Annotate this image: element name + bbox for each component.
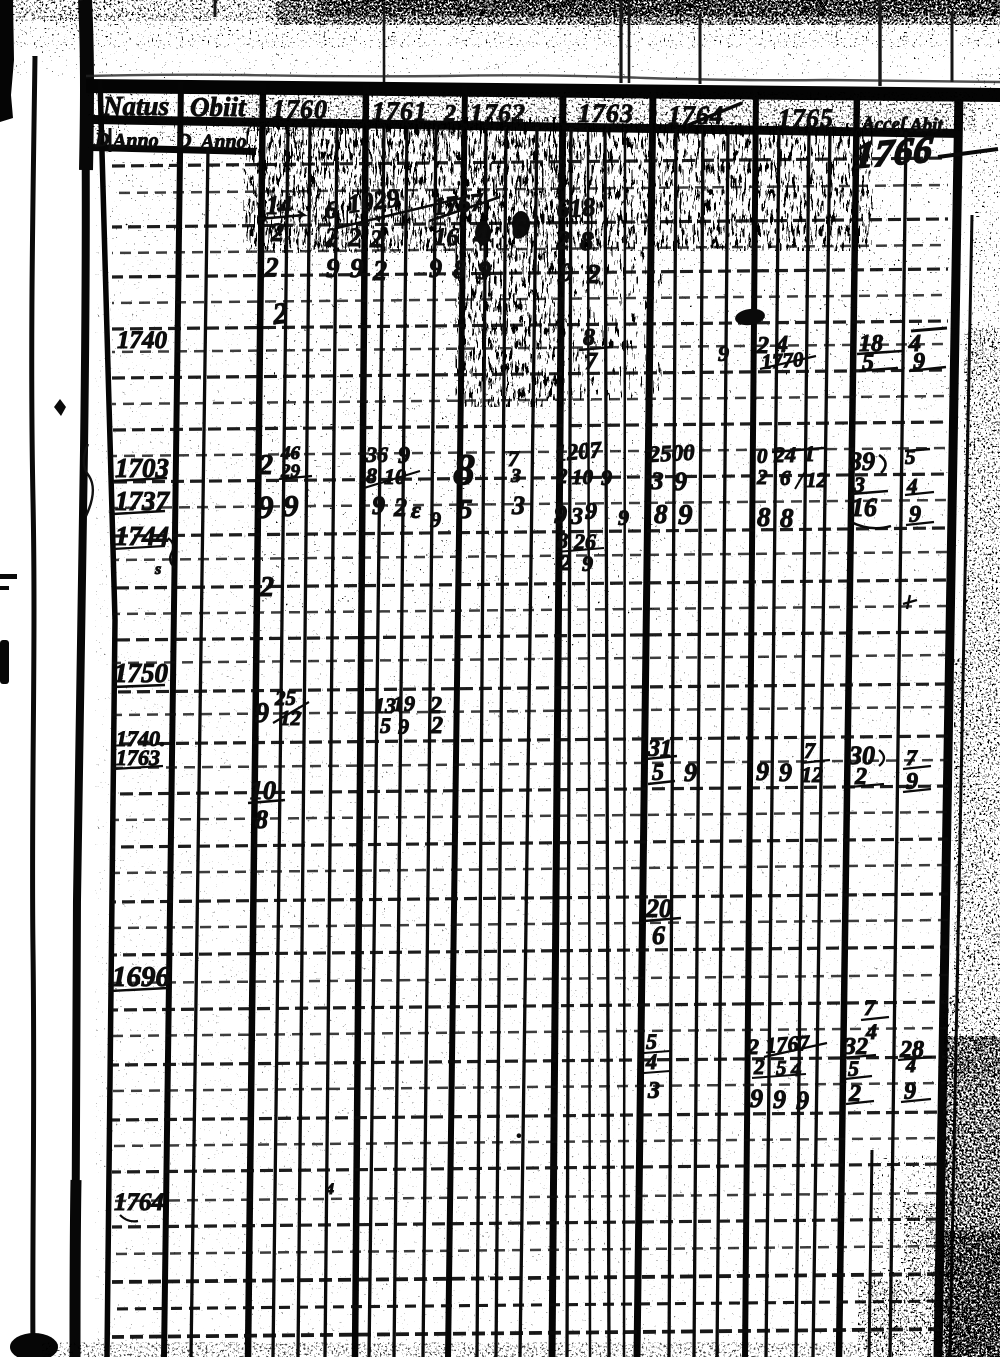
svg-text:2: 2 [324, 223, 338, 252]
svg-text:7: 7 [906, 745, 918, 770]
svg-text:4: 4 [325, 1181, 334, 1198]
svg-text:6: 6 [780, 466, 791, 490]
svg-text:9: 9 [684, 758, 697, 787]
svg-text:2500: 2500 [647, 440, 696, 467]
svg-text:9: 9 [585, 499, 597, 525]
svg-text:12: 12 [280, 706, 302, 730]
svg-text:9: 9 [601, 465, 612, 490]
svg-text:s: s [154, 561, 161, 578]
svg-text:3: 3 [650, 468, 664, 495]
svg-text:2: 2 [369, 226, 383, 253]
svg-text:2: 2 [756, 465, 768, 489]
svg-text:2: 2 [264, 252, 279, 282]
svg-text:16: 16 [434, 224, 460, 251]
svg-text:5: 5 [905, 445, 916, 469]
svg-text:8: 8 [453, 445, 475, 494]
svg-text:9: 9 [255, 698, 269, 729]
svg-text:7: 7 [864, 995, 876, 1020]
svg-text:4: 4 [905, 1055, 916, 1077]
svg-text:1767: 1767 [765, 1030, 812, 1058]
svg-text:12: 12 [806, 468, 828, 492]
svg-text:2: 2 [259, 572, 274, 603]
svg-text:2: 2 [556, 464, 568, 488]
svg-text:2: 2 [753, 1055, 765, 1079]
svg-text:618: 618 [555, 192, 596, 224]
svg-text:ε: ε [411, 498, 421, 524]
svg-text:5: 5 [380, 713, 391, 738]
svg-text:9: 9 [430, 507, 441, 532]
svg-text:9: 9 [750, 1084, 763, 1113]
svg-text:9: 9 [554, 500, 567, 529]
svg-text:8: 8 [654, 499, 668, 529]
svg-text:24: 24 [773, 442, 796, 467]
svg-text:8: 8 [780, 503, 794, 533]
svg-text:16: 16 [851, 493, 877, 522]
svg-text:5: 5 [862, 350, 874, 376]
svg-text:2: 2 [393, 493, 407, 522]
svg-text:8: 8 [583, 325, 595, 351]
svg-text:2: 2 [270, 218, 284, 247]
svg-text:1750: 1750 [114, 658, 169, 688]
svg-text:4: 4 [790, 1057, 802, 1081]
svg-text:9: 9 [674, 467, 687, 496]
svg-text:9: 9 [398, 714, 409, 739]
svg-text:6: 6 [512, 214, 526, 245]
svg-text:9: 9 [429, 254, 442, 283]
svg-text:1207: 1207 [554, 437, 603, 466]
svg-text:9: 9 [779, 758, 792, 787]
svg-text:9: 9 [773, 1085, 786, 1114]
svg-text:3: 3 [647, 1078, 660, 1104]
svg-text:2: 2 [258, 450, 273, 481]
svg-text:8: 8 [580, 226, 594, 256]
svg-text:10: 10 [572, 465, 594, 489]
svg-text:9: 9 [283, 488, 299, 523]
svg-text:5: 5 [459, 494, 473, 524]
svg-text:6: 6 [652, 921, 665, 950]
svg-text:4: 4 [645, 1049, 657, 1074]
svg-text:2: 2 [347, 223, 361, 252]
svg-text:3: 3 [511, 491, 525, 520]
svg-text:1: 1 [804, 441, 815, 466]
svg-text:7: 7 [585, 349, 598, 375]
svg-text:9: 9 [326, 253, 340, 283]
svg-text:1766: 1766 [854, 129, 935, 177]
svg-text:12: 12 [801, 762, 823, 787]
svg-text:9: 9 [718, 341, 729, 366]
svg-text:19: 19 [393, 691, 415, 716]
svg-text:9: 9 [678, 499, 693, 531]
svg-text:2: 2 [556, 226, 570, 255]
svg-text:9: 9 [756, 757, 769, 786]
svg-text:1740: 1740 [117, 327, 168, 354]
svg-text:9: 9 [372, 491, 385, 520]
svg-text:·: · [516, 1123, 522, 1148]
svg-text:9: 9 [582, 551, 593, 576]
svg-text:2: 2 [443, 101, 456, 127]
svg-text:2: 2 [372, 256, 387, 287]
svg-text:8: 8 [757, 502, 771, 532]
svg-text:9: 9 [350, 253, 364, 283]
svg-text:4: 4 [473, 221, 488, 252]
svg-text:3: 3 [570, 504, 583, 530]
svg-text:9: 9 [257, 490, 274, 526]
svg-text:2: 2 [559, 550, 571, 575]
svg-text:8: 8 [453, 255, 466, 284]
svg-text:6: 6 [325, 197, 338, 224]
svg-text:9: 9 [560, 258, 573, 287]
svg-text:2: 2 [586, 259, 601, 289]
svg-text:2: 2 [430, 713, 443, 739]
svg-text:9: 9 [478, 256, 491, 285]
svg-text:9: 9 [618, 505, 629, 530]
svg-text:7: 7 [804, 738, 816, 763]
svg-text:1764: 1764 [114, 1189, 164, 1216]
svg-text:3: 3 [510, 465, 521, 487]
svg-text:9: 9 [796, 1086, 809, 1115]
svg-text:8: 8 [255, 805, 268, 834]
